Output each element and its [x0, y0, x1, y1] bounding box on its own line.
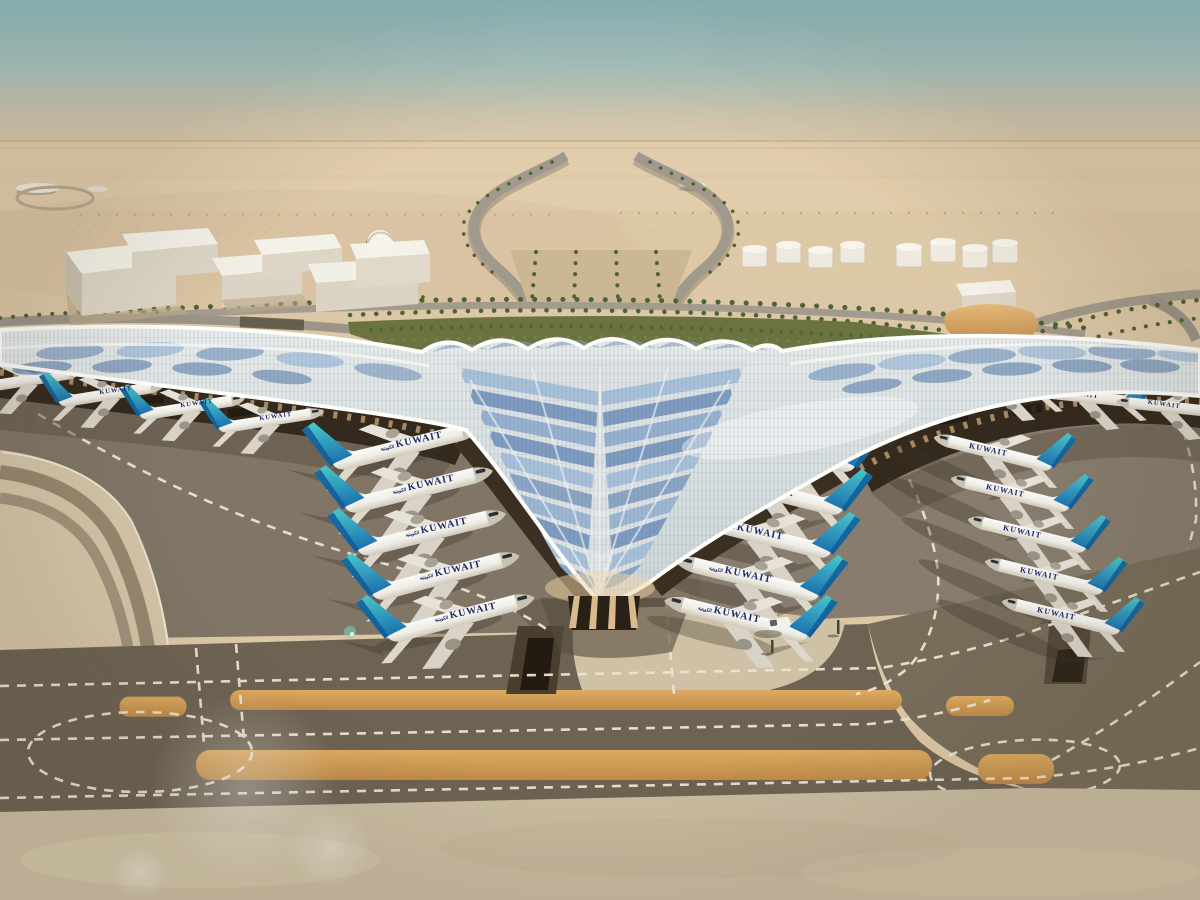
airport-aerial-render: الكويتيةKUWAIT الكويتيةKUWAIT الكويتيةKU…: [0, 0, 1200, 900]
scene-canvas: الكويتيةKUWAIT الكويتيةKUWAIT الكويتيةKU…: [0, 0, 1200, 900]
vignette: [0, 0, 1200, 900]
